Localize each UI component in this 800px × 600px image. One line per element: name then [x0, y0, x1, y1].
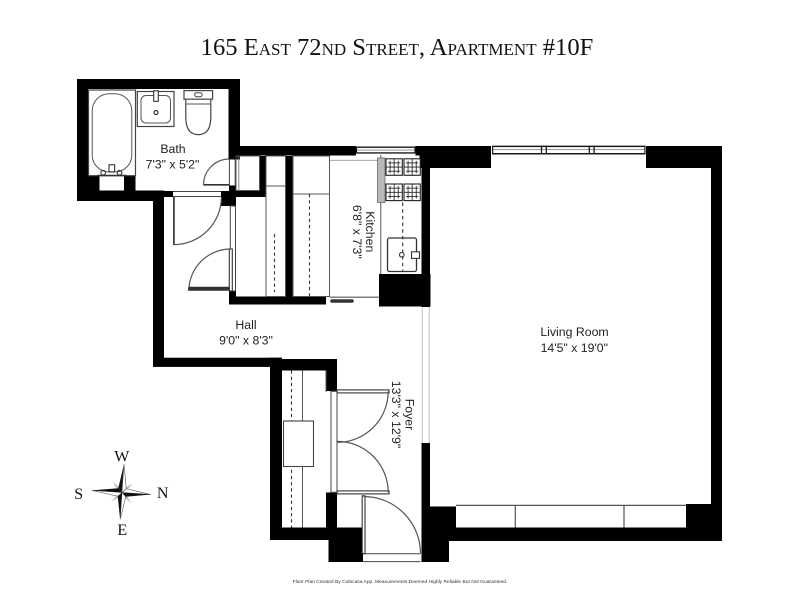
svg-text:14'5" x 19'0": 14'5" x 19'0" [541, 341, 608, 355]
svg-text:W: W [114, 449, 130, 466]
svg-text:N: N [157, 485, 169, 502]
svg-text:Foyer: Foyer [403, 399, 417, 430]
svg-text:165 East 72nd Street, Apartmen: 165 East 72nd Street, Apartment #10F [201, 34, 594, 61]
svg-text:Living Room: Living Room [540, 325, 608, 339]
svg-text:7'3" x 5'2": 7'3" x 5'2" [146, 157, 200, 171]
svg-text:E: E [117, 522, 127, 539]
svg-text:Floor Plan Created By Cubicasa: Floor Plan Created By Cubicasa App. Meas… [293, 579, 508, 585]
svg-text:Kitchen: Kitchen [363, 211, 377, 252]
svg-text:Hall: Hall [235, 318, 256, 332]
svg-text:S: S [74, 486, 83, 503]
svg-text:13'3" x 12'9": 13'3" x 12'9" [389, 381, 403, 448]
svg-text:Bath: Bath [160, 142, 185, 156]
svg-text:9'0" x 8'3": 9'0" x 8'3" [219, 334, 273, 348]
svg-text:6'8" x 7'3": 6'8" x 7'3" [350, 205, 364, 259]
